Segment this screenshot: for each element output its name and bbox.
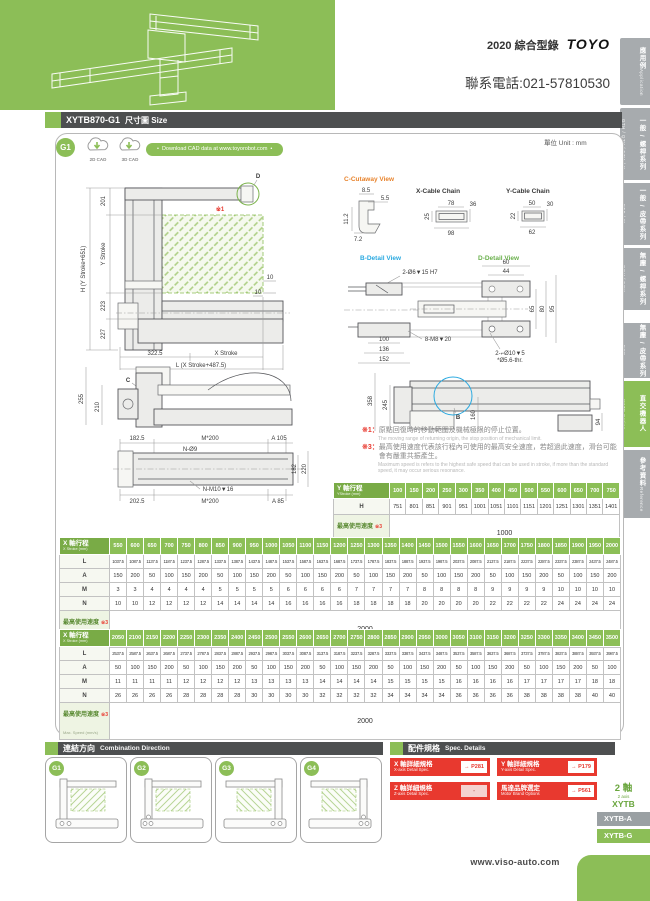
table-cell: 2450 [246,630,263,647]
table-cell: 3300 [535,630,552,647]
table-cell: 750 [178,538,195,555]
table-cell: 3250 [518,630,535,647]
table-cell: 50 [518,661,535,675]
dim-50: 50 [529,201,536,207]
table-cell: 100 [127,661,144,675]
table-cell: 1187.5 [161,555,178,569]
spec-en: Y-axis Detail Spec. [501,768,568,773]
tab-zh: 直交機器人 [636,395,646,433]
table-cell: 1350 [382,538,399,555]
table-cell: 1450 [416,538,433,555]
table-cell: 150 [416,661,433,675]
table-cell: 20 [416,597,433,611]
table-cell: 50 [484,569,501,583]
table-cell: 30 [297,689,314,703]
table-cell: 950 [246,538,263,555]
table-cell: 50 [348,569,365,583]
table-cell: 150 [382,569,399,583]
page-ref[interactable]: → P561 [568,785,594,797]
table-cell: 2437.5 [586,555,603,569]
dim-78: 78 [448,201,455,207]
table-cell: 17 [552,675,569,689]
note1-marker: ※1 [216,205,225,213]
table-cell: 8 [467,583,484,597]
product-image [0,0,335,110]
y-axis-spec-label: Y 軸詳細規格 Y-axis Detail Spec. [497,761,568,773]
x2-max-speed-value: 2000 [110,703,621,740]
table-cell: 550 [110,538,127,555]
table-cell: 2600 [297,630,314,647]
table-cell: 34 [416,689,433,703]
table-cell: 200 [331,569,348,583]
table-cell: 3500 [603,630,620,647]
series-tab-xytb-a[interactable]: XYTB-A [597,812,650,826]
footer-url[interactable]: www.viso-auto.com [455,857,575,867]
table-cell: 1237.5 [178,555,195,569]
table-cell: 24 [569,597,586,611]
table-cell: 1637.5 [314,555,331,569]
speed-zh: 最高使用速度 [63,712,99,718]
note-1-en: The moving range of returning origin, th… [378,436,618,443]
dim-210: 210 [95,401,101,412]
table-cell: 9 [501,583,518,597]
table-cell: 2100 [127,630,144,647]
x2-row-label-A: A [60,661,110,675]
table-cell: 24 [552,597,569,611]
table-cell: 150 [212,661,229,675]
table-cell: 40 [603,689,620,703]
table-cell: 3400 [569,630,586,647]
table-cell: 2300 [195,630,212,647]
tab-en: Reference [639,487,644,512]
table-cell: 3787.5 [535,647,552,661]
x2-header-zh: X 軸行程 [63,632,109,639]
table-cell: 3 [127,583,144,597]
combo-diagram-g2 [135,772,207,834]
x1-table-corner: X 軸行程 X Stroke (mm) [60,538,110,555]
dim-10a: 10 [267,275,274,281]
table-cell: 36 [484,689,501,703]
table-cell: 1051 [488,499,504,515]
sidebar-tab-gch[interactable]: 無塵 / 螺桿系列GCH / ECH [620,248,650,310]
sidebar-tab-gth[interactable]: 一般 / 螺桿系列GTH / QTY / ETH / Y [620,108,650,180]
table-cell: 2287.5 [535,555,552,569]
table-cell: 901 [439,499,455,515]
speed-ref: ※3 [375,524,382,530]
table-cell: 3187.5 [331,647,348,661]
table-cell: 3387.5 [399,647,416,661]
table-cell: 100 [535,661,552,675]
table-cell: 17 [569,675,586,689]
dim-80: 80 [540,305,546,312]
dim-255: 255 [79,393,85,404]
table-cell: 16 [314,597,331,611]
b-detail-title: B-Detail View [360,255,402,262]
table-cell: 10 [110,597,127,611]
title-bar: XYTB870-G1 尺寸圖 Size [45,112,622,128]
dim-223: 223 [101,300,107,311]
table-cell: 50 [280,569,297,583]
x-axis-spec-button[interactable]: X 軸詳細規格 X-axis Detail Spec. → P281 [390,758,490,776]
cad-3d-download[interactable]: 3D CAD [114,137,146,162]
table-cell: 1537.5 [280,555,297,569]
sidebar-tab-application[interactable]: 應用例Application [620,38,650,105]
table-cell: 500 [521,483,537,499]
table-cell: 1750 [518,538,535,555]
table-cell: 9 [518,583,535,597]
x-chain-title: X-Cable Chain [416,188,460,195]
table-cell: 14 [212,597,229,611]
unit-label: 單位 Unit : mm [544,137,587,147]
table-cell: 1250 [348,538,365,555]
dim-95: 95 [550,305,556,312]
table-cell: 13 [297,675,314,689]
combination-card-g1: G1 [45,757,127,843]
table-cell: 1687.5 [331,555,348,569]
table-cell: 600 [554,483,570,499]
table-cell: 3987.5 [603,647,620,661]
table-cell: 3100 [467,630,484,647]
table-cell: 26 [127,689,144,703]
table-cell: 3000 [433,630,450,647]
note-1: ※1： 原點回復時的移動範圍及機械極限的停止位置。 [362,427,618,436]
callout-2-o6: 2-Ø6▼15 H7 [402,270,438,276]
tab-zh: 應用例 [636,47,646,70]
table-cell: 16 [297,597,314,611]
sidebar-tab-etb[interactable]: 一般 / 皮帶系列ETB / M [620,183,650,245]
table-cell: 2687.5 [161,647,178,661]
callout-n-o9: N-Ø9 [183,447,198,453]
table-cell: 200 [195,569,212,583]
table-cell: 1200 [331,538,348,555]
dim-60: 60 [503,260,510,266]
page-title-label: 尺寸圖 Size [125,115,167,126]
dim-245: 245 [383,399,389,410]
front-view: D ※1 H (Y Stroke+651) 201 Y Stroke 223 2… [81,174,290,370]
table-cell: 18 [586,675,603,689]
table-cell: 2937.5 [246,647,263,661]
spec-section-bar: 配件規格 Spec. Details [390,742,615,755]
table-cell: 200 [297,661,314,675]
dim-65: 65 [530,305,536,312]
table-cell: 4 [144,583,161,597]
table-cell: 14 [263,597,280,611]
combination-card-g2: G2 [130,757,212,843]
table-cell: 50 [212,569,229,583]
table-cell: 5 [263,583,280,597]
dim-62: 62 [529,230,536,236]
table-cell: 11 [127,675,144,689]
table-cell: 100 [433,569,450,583]
table-cell: 50 [144,569,161,583]
combination-card-g3: G3 [215,757,297,843]
table-cell: 50 [110,661,127,675]
x-stroke-table-2: X 軸行程 X Stroke (mm) 20502100215022002250… [59,629,621,740]
table-cell: 16 [467,675,484,689]
table-cell: 3687.5 [501,647,518,661]
table-cell: 400 [488,483,504,499]
dim-202-5: 202.5 [129,499,145,505]
table-cell: 30 [263,689,280,703]
table-cell: 32 [314,689,331,703]
table-cell: 801 [406,499,422,515]
table-cell: 6 [297,583,314,597]
table-cell: 1151 [521,499,537,515]
table-cell: 100 [263,661,280,675]
y-axis-spec-button[interactable]: Y 軸詳細規格 Y-axis Detail Spec. → P179 [497,758,597,776]
table-cell: 1500 [433,538,450,555]
spec-en: Z-axis Detail Spec. [394,792,461,797]
table-cell: 22 [518,597,535,611]
contact-phone: 聯系電話:021-57810530 [465,72,610,92]
x1-header-en: X Stroke (mm) [63,547,109,551]
combo-diagram-g1 [50,772,122,834]
note-3: ※3： 最高使用速度代表該行程內可使用的最高安全速度，若超過此速度，滑台可能會有… [362,444,618,462]
dim-x-stroke: X Stroke [214,351,238,357]
table-cell: 100 [569,569,586,583]
dim-a85: A 85 [272,499,285,505]
dim-358: 358 [368,395,374,406]
table-cell: 2200 [161,630,178,647]
table-cell: 200 [501,661,518,675]
table-cell: 3200 [501,630,518,647]
table-cell: 12 [212,675,229,689]
cad-2d-download[interactable]: 2D CAD [82,137,114,162]
table-cell: 2950 [416,630,433,647]
page-ref: - [461,785,487,797]
tab-zh: 一般 / 皮帶系列 [636,187,646,240]
x1-A-row: A 15020050100150200501001502005010015020… [60,569,621,583]
note-1-zh: 原點回復時的移動範圍及機械極限的停止位置。 [379,427,526,436]
table-cell: 1251 [554,499,570,515]
table-cell: 16 [280,597,297,611]
table-cell: 150 [484,661,501,675]
spec-en: Motor Brand Options [501,792,568,797]
table-cell: 750 [603,483,620,499]
table-cell: 5 [212,583,229,597]
table-cell: 11 [110,675,127,689]
table-cell: 28 [229,689,246,703]
table-cell: 951 [455,499,471,515]
table-cell: 3637.5 [484,647,501,661]
table-cell: 2700 [331,630,348,647]
table-cell: 32 [331,689,348,703]
table-cell: 32 [365,689,382,703]
table-cell: 2837.5 [212,647,229,661]
x2-row-label-L: L [60,647,110,661]
table-cell: 150 [450,569,467,583]
table-cell: 36 [501,689,518,703]
x1-M-row: M 3344445555666677778888999910101010 [60,583,621,597]
table-cell: 2137.5 [484,555,501,569]
spec-title-en: Spec. Details [445,745,485,752]
page-ref[interactable]: → P281 [461,761,487,773]
tab-en: Application [639,69,644,96]
x2-row-label-M: M [60,675,110,689]
table-cell: 24 [603,597,620,611]
table-cell: 4 [195,583,212,597]
table-cell: 1150 [314,538,331,555]
dim-182-5: 182.5 [129,436,145,442]
table-cell: 1787.5 [365,555,382,569]
table-cell: 2087.5 [467,555,484,569]
download-cad-button[interactable]: Download CAD data at www.toyorobot.com [146,143,283,156]
tab-zh: 一般 / 螺桿系列 [636,117,646,170]
table-cell: 12 [195,675,212,689]
table-cell: 14 [246,597,263,611]
y-row-label: H [334,499,390,515]
table-cell: 150 [406,483,422,499]
dim-m200-bottom: M*200 [201,499,219,505]
table-cell: 650 [144,538,161,555]
callout-8-m8: 8-M8▼20 [425,337,452,343]
sidebar-tab-reference[interactable]: 參考資料Reference [620,450,650,518]
sidebar-tab-xytb[interactable]: 直交機器人XYTB Series [620,381,650,447]
table-cell: 8 [450,583,467,597]
dim-94: 94 [596,418,602,425]
table-cell: 34 [382,689,399,703]
x1-row-label-N: N [60,597,110,611]
table-cell: 4 [161,583,178,597]
table-cell: 851 [422,499,438,515]
table-cell: 1550 [450,538,467,555]
table-cell: 24 [586,597,603,611]
section-green-square [45,742,58,755]
table-cell: 36 [467,689,484,703]
table-cell: 3350 [552,630,569,647]
table-cell: 16 [484,675,501,689]
table-cell: 38 [535,689,552,703]
callout-counterbore: 2-⌐Ø10▼5 [495,351,525,357]
table-cell: 100 [297,569,314,583]
x1-N-row: N 10101212121214141414161616161818181820… [60,597,621,611]
table-cell: 13 [263,675,280,689]
table-cell: 6 [331,583,348,597]
combination-section-bar: 連結方向 Combination Direction [45,742,383,755]
table-cell: 2150 [144,630,161,647]
table-cell: 1287.5 [195,555,212,569]
table-cell: 26 [161,689,178,703]
table-cell: 10 [569,583,586,597]
table-cell: 14 [331,675,348,689]
table-cell: 150 [280,661,297,675]
table-cell: 1600 [467,538,484,555]
table-cell: 3437.5 [416,647,433,661]
note-3-ref: ※3： [362,444,379,462]
y-cable-chain-view: Y-Cable Chain 50 30 22 62 [506,188,554,236]
table-cell: 14 [348,675,365,689]
cloud-download-icon [114,137,146,153]
table-cell: 6 [280,583,297,597]
table-cell: 2550 [280,630,297,647]
d-detail-title: D-Detail View [478,255,520,262]
cloud-download-icon [82,137,114,153]
note-3-en: Maximum speed is refers to the highest s… [378,462,618,475]
table-cell: 22 [501,597,518,611]
table-cell: 3450 [586,630,603,647]
table-cell: 18 [365,597,382,611]
table-cell: 150 [586,569,603,583]
table-cell: 1887.5 [399,555,416,569]
motor-brand-button[interactable]: 馬達品牌選定 Motor Brand Options → P561 [497,782,597,800]
dim-44: 44 [503,269,510,275]
series-tab-xytb-g[interactable]: XYTB-G [597,829,650,843]
table-cell: 13 [246,675,263,689]
side-view-right: B 358 245 160 94 [368,373,602,433]
table-cell: 3587.5 [467,647,484,661]
table-cell: 15 [416,675,433,689]
table-cell: 2987.5 [263,647,280,661]
table-cell: 800 [195,538,212,555]
table-cell: 4 [178,583,195,597]
table-cell: 1087.5 [127,555,144,569]
table-cell: 7 [365,583,382,597]
section-green-square [390,742,403,755]
combo-diagram-g3 [220,772,292,834]
table-cell: 850 [212,538,229,555]
table-cell: 150 [314,569,331,583]
dim-182: 182 [292,463,298,474]
z-axis-spec-button[interactable]: Z 軸詳細規格 Z-axis Detail Spec. - [390,782,490,800]
table-cell: 20 [467,597,484,611]
table-cell: 200 [603,569,620,583]
table-cell: 1800 [535,538,552,555]
x-axis-spec-label: X 軸詳細規格 X-axis Detail Spec. [390,761,461,773]
table-cell: 1987.5 [433,555,450,569]
dim-98: 98 [448,231,455,237]
dim-227: 227 [101,328,107,339]
series-axes-zh: 2 軸 [597,784,650,794]
page-title-model: XYTB870-G1 [66,115,120,125]
combination-card-g4: G4 [300,757,382,843]
table-cell: 18 [399,597,416,611]
detail-c-marker: C [126,378,131,384]
table-cell: 17 [535,675,552,689]
table-cell: 100 [390,483,406,499]
table-cell: 1337.5 [212,555,229,569]
table-cell: 9 [484,583,501,597]
table-cell: 1950 [586,538,603,555]
table-cell: 3937.5 [586,647,603,661]
table-cell: 50 [586,661,603,675]
table-cell: 1937.5 [416,555,433,569]
table-cell: 2800 [365,630,382,647]
page-ref[interactable]: → P179 [568,761,594,773]
table-cell: 3087.5 [297,647,314,661]
plan-view: 182.5 M*200 A 105 N-Ø9 182 220 N-M10▼16 … [113,436,308,505]
table-cell: 600 [127,538,144,555]
table-cell: 3150 [484,630,501,647]
table-cell: 1587.5 [297,555,314,569]
table-cell: 700 [587,483,603,499]
speed-ref: ※3 [101,712,108,718]
table-cell: 12 [195,597,212,611]
table-cell: 26 [144,689,161,703]
table-cell: 34 [433,689,450,703]
table-cell: 200 [229,661,246,675]
table-cell: 751 [390,499,406,515]
x2-row-label-N: N [60,689,110,703]
note-1-ref: ※1： [362,427,379,436]
sidebar-tab-ecb[interactable]: 無塵 / 皮帶系列ECB [620,323,650,378]
table-cell: 200 [467,569,484,583]
table-cell: 2650 [314,630,331,647]
table-cell: 10 [552,583,569,597]
table-cell: 100 [501,569,518,583]
tab-zh: 無塵 / 螺桿系列 [636,252,646,305]
table-cell: 22 [484,597,501,611]
combo-badge: G1 [49,761,64,776]
